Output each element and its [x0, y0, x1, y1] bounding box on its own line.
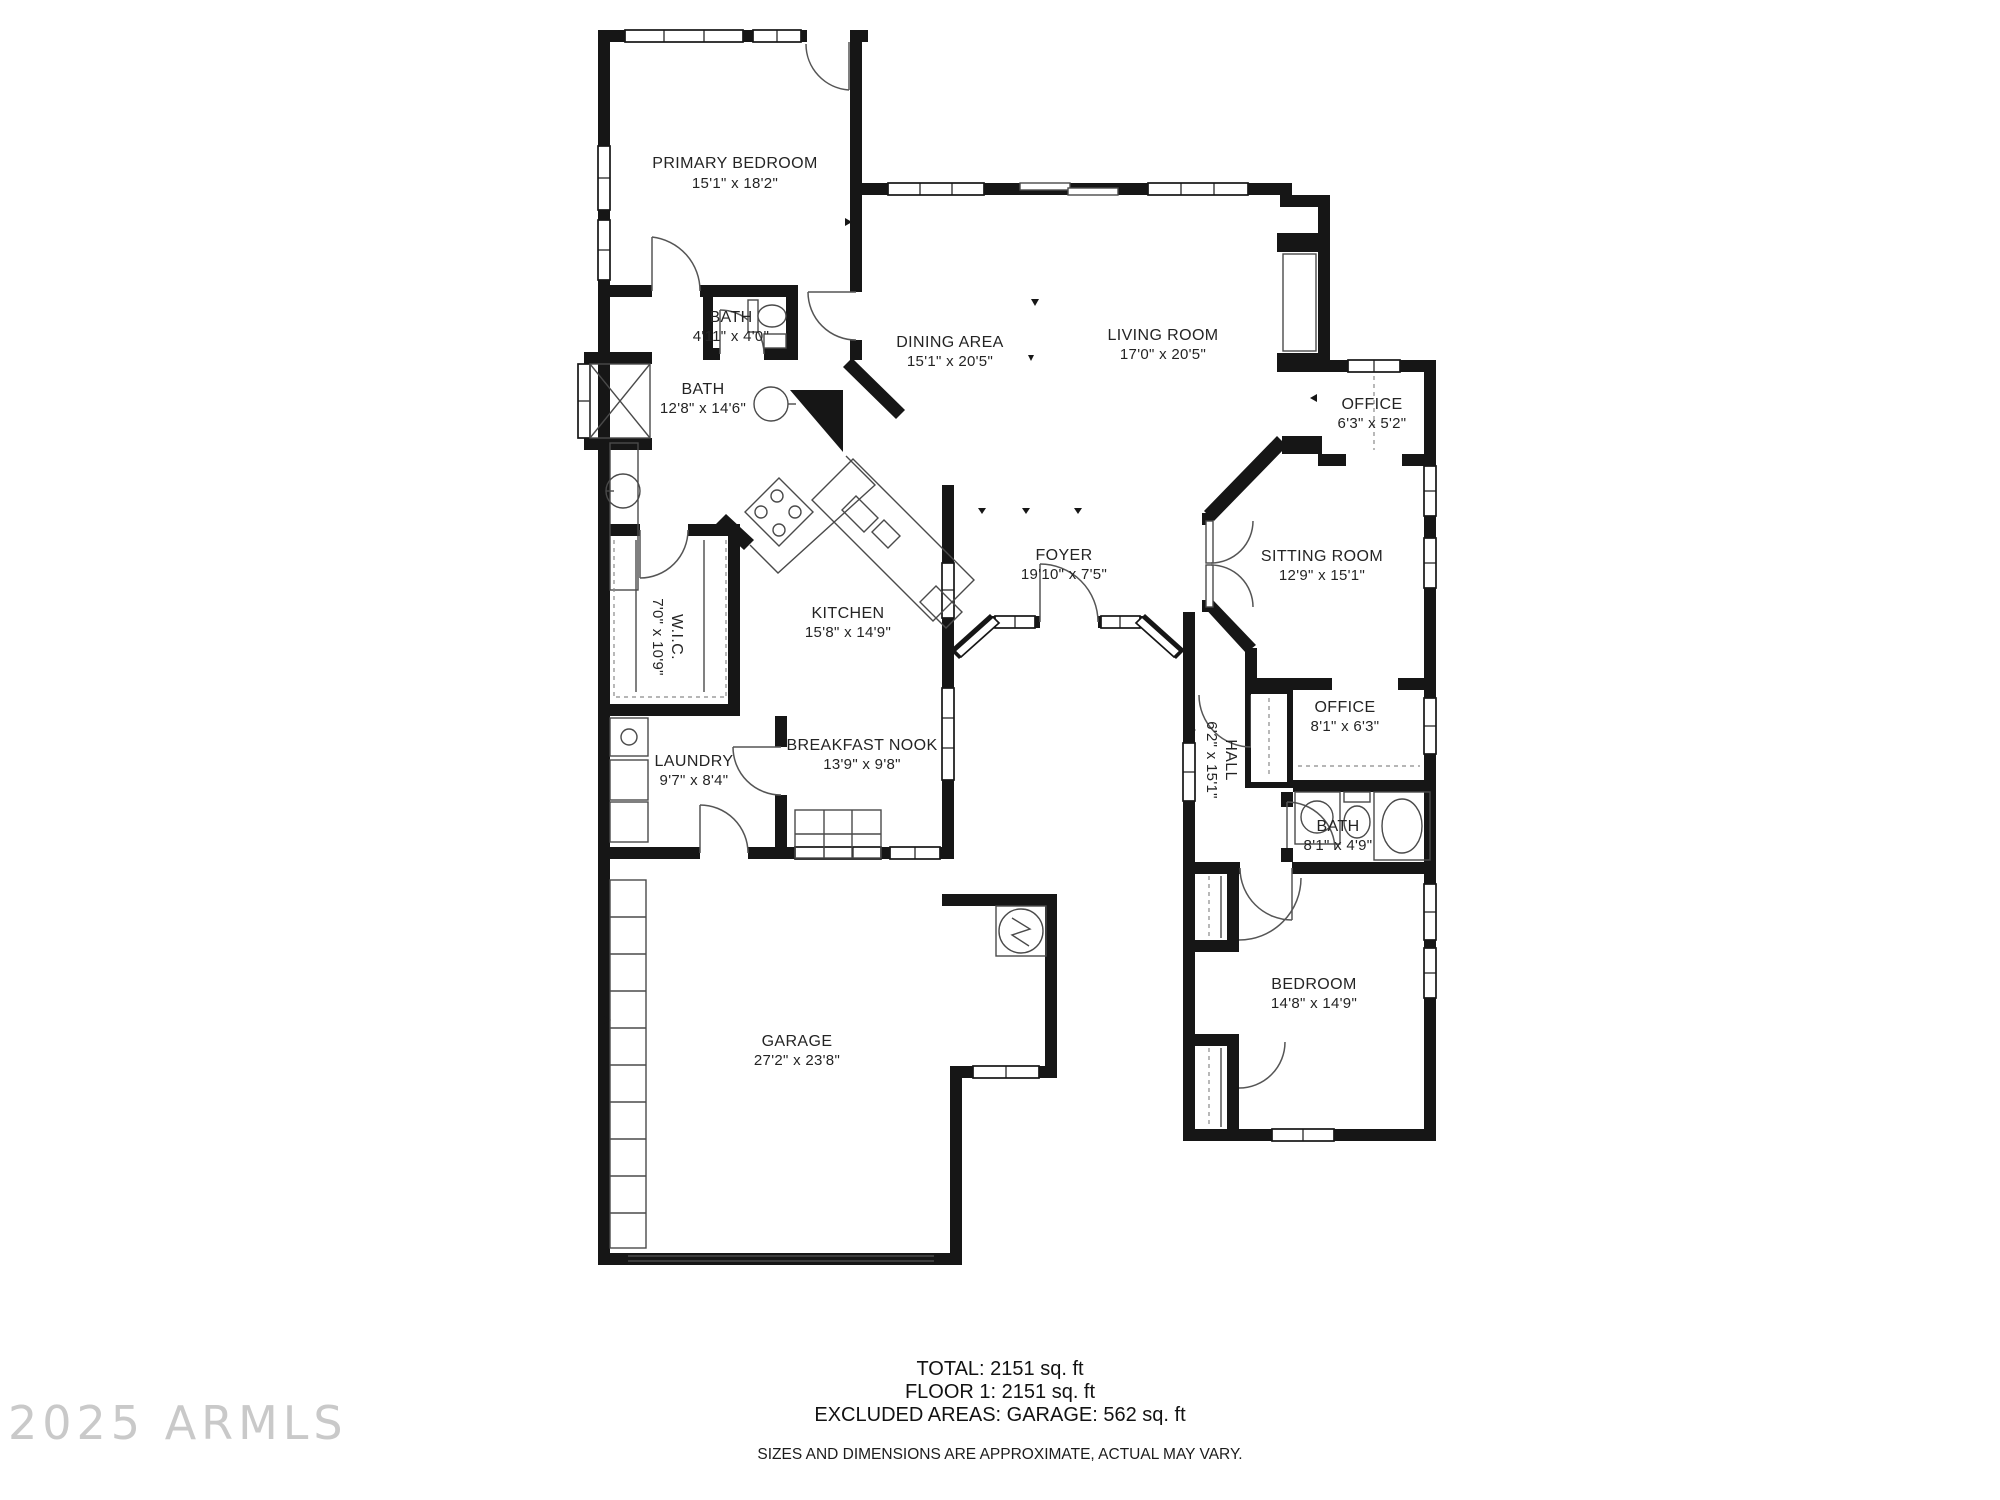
room-dims-laundry: 9'7" x 8'4" — [660, 772, 729, 789]
room-label-hall: HALL — [1222, 739, 1239, 781]
room-dims-wic: 7'0" x 10'9" — [649, 598, 666, 676]
room-dims-bath-primary: 12'8" x 14'6" — [660, 400, 746, 417]
room-dims-office-lower: 8'1" x 6'3" — [1311, 718, 1380, 735]
media-niche — [1283, 254, 1316, 351]
room-dims-kitchen: 15'8" x 14'9" — [805, 624, 891, 641]
room-label-dining-area: DINING AREA — [896, 334, 1004, 351]
room-dims-bedroom: 14'8" x 14'9" — [1271, 995, 1357, 1012]
room-dims-primary-bedroom: 15'1" x 18'2" — [692, 175, 778, 192]
armls-watermark: 2025 ARMLS — [8, 1396, 348, 1450]
kitchen-counters — [745, 456, 974, 628]
room-label-breakfast-nook: BREAKFAST NOOK — [786, 737, 937, 754]
room-label-laundry: LAUNDRY — [655, 753, 734, 770]
room-label-office-lower: OFFICE — [1314, 699, 1375, 716]
room-dims-living-room: 17'0" x 20'5" — [1120, 346, 1206, 363]
primary-vanity — [606, 387, 796, 590]
room-label-kitchen: KITCHEN — [811, 605, 884, 622]
total-area: TOTAL: 2151 sq. ft — [35, 1358, 1965, 1381]
water-heater — [996, 906, 1046, 956]
floor-plan-page: PRIMARY BEDROOM 15'1" x 18'2" BATH 4'11"… — [0, 0, 2000, 1500]
room-dims-bath-small: 4'11" x 4'0" — [693, 328, 769, 345]
room-label-bath-primary: BATH — [681, 381, 724, 398]
room-dims-sitting-room: 12'9" x 15'1" — [1279, 567, 1365, 584]
room-dims-hall: 6'2" x 15'1" — [1203, 721, 1220, 799]
room-dims-bath-lower: 8'1" x 4'9" — [1304, 837, 1373, 854]
floor-plan-drawing: PRIMARY BEDROOM 15'1" x 18'2" BATH 4'11"… — [0, 0, 2000, 1320]
walls — [584, 30, 1436, 1265]
room-label-sitting-room: SITTING ROOM — [1261, 548, 1383, 565]
room-label-office-upper: OFFICE — [1341, 396, 1402, 413]
room-dims-garage: 27'2" x 23'8" — [754, 1052, 840, 1069]
room-label-primary-bedroom: PRIMARY BEDROOM — [652, 155, 817, 172]
room-label-wic: W.I.C. — [668, 614, 685, 660]
garage-shelves — [610, 880, 646, 1248]
room-dims-office-upper: 6'3" x 5'2" — [1338, 415, 1407, 432]
room-dims-breakfast-nook: 13'9" x 9'8" — [823, 756, 901, 773]
room-label-living-room: LIVING ROOM — [1107, 327, 1218, 344]
bedroom-closets — [1209, 876, 1221, 1127]
linen-closet — [1251, 694, 1287, 782]
room-label-garage: GARAGE — [762, 1033, 833, 1050]
room-label-bedroom: BEDROOM — [1271, 976, 1356, 993]
room-dims-dining-area: 15'1" x 20'5" — [907, 353, 993, 370]
laundry-appliances — [610, 718, 648, 842]
room-label-bath-small: BATH — [709, 309, 752, 326]
room-label-bath-lower: BATH — [1316, 818, 1359, 835]
room-dims-foyer: 19'10" x 7'5" — [1021, 566, 1107, 583]
room-label-foyer: FOYER — [1035, 547, 1092, 564]
